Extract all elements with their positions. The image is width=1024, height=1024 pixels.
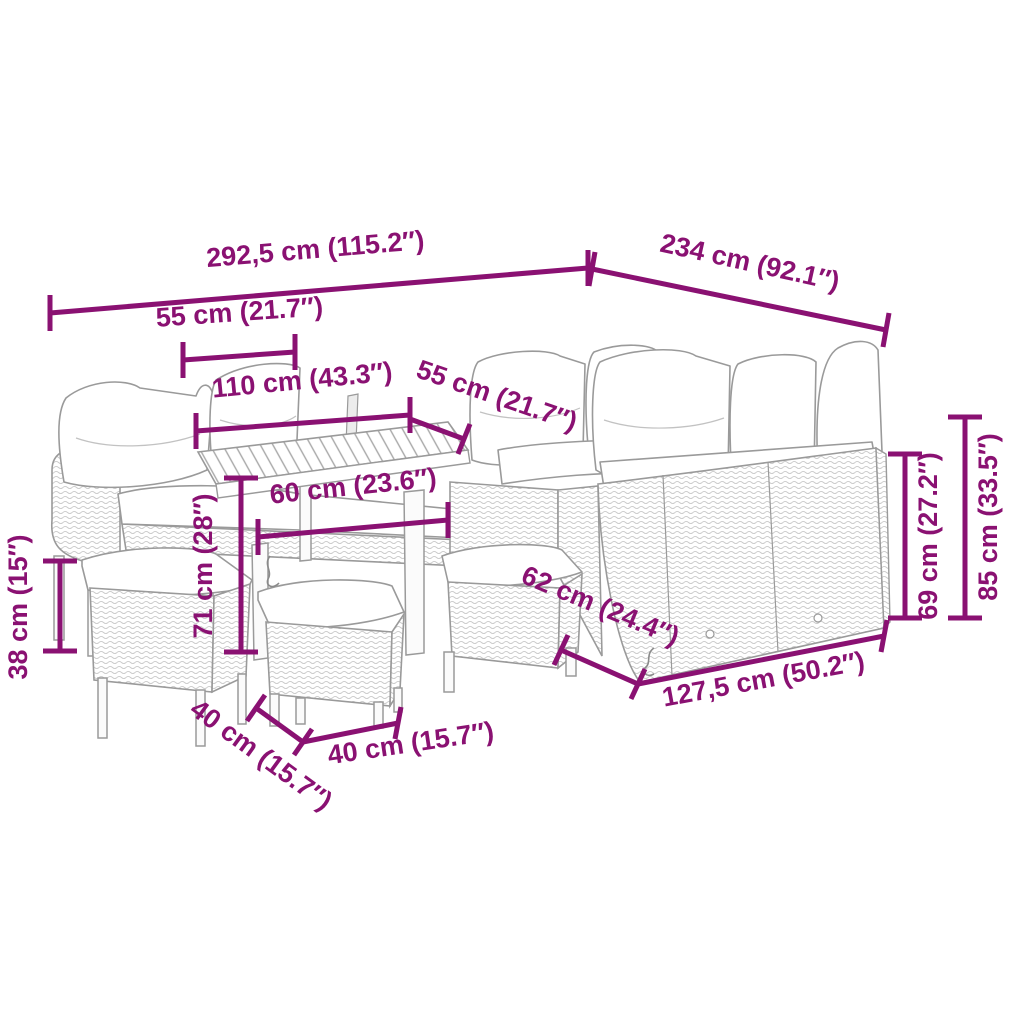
furniture-dimension-diagram: 292,5 cm (115.2″) 234 cm (92.1″) 55 cm (… [0, 0, 1024, 1024]
dim-stool-width: 40 cm (15.7″) [303, 707, 496, 770]
dim-label-bench-width: 110 cm (43.3″) [211, 356, 394, 403]
stool-right [442, 545, 582, 692]
table-leg-front-right [404, 490, 424, 655]
stool-leg [238, 674, 246, 724]
stool-box-front [266, 622, 392, 706]
stool-leg [444, 652, 454, 692]
back-cushion [59, 382, 213, 487]
dim-label-arm-section-width: 55 cm (21.7″) [155, 291, 324, 333]
stool-cushion [258, 580, 404, 628]
dim-overall-depth: 234 cm (92.1″) [589, 228, 889, 347]
dim-overall-height: 85 cm (33.5″) [948, 417, 1003, 618]
dim-stool-depth: 40 cm (15.7″) [185, 693, 338, 816]
dim-label-back-rest-height: 69 cm (27.2″) [913, 452, 943, 620]
stool-leg [296, 698, 305, 724]
screw-hole [706, 630, 714, 638]
tie-cord [267, 556, 279, 586]
stool-front [258, 580, 404, 728]
dim-label-stool-width: 40 cm (15.7″) [326, 716, 496, 770]
dim-back-rest-height: 69 cm (27.2″) [888, 452, 943, 620]
dim-label-overall-height: 85 cm (33.5″) [973, 433, 1003, 601]
stool-leg [98, 678, 107, 738]
dim-label-overall-width: 292,5 cm (115.2″) [205, 225, 425, 273]
dim-stool-height: 38 cm (15″) [3, 534, 77, 679]
dim-label-stool-height: 38 cm (15″) [3, 534, 33, 679]
dimension-diagram-page: 292,5 cm (115.2″) 234 cm (92.1″) 55 cm (… [0, 0, 1024, 1024]
dim-label-table-height: 71 cm (28″) [188, 493, 218, 638]
screw-hole [814, 614, 822, 622]
